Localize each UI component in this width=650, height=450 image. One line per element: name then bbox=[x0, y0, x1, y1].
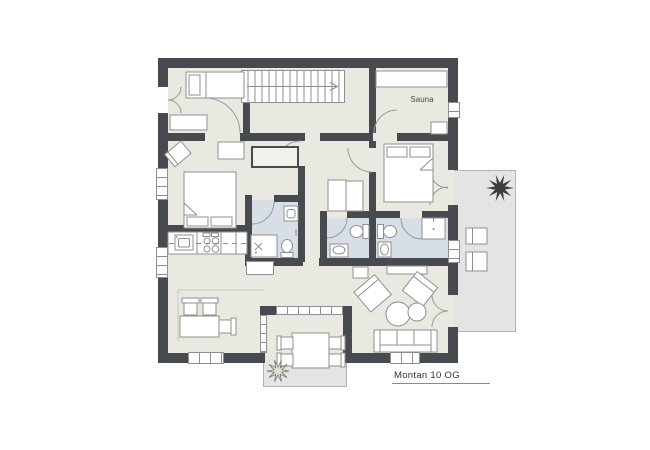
terrace-chair bbox=[466, 252, 487, 271]
dining-chair bbox=[201, 298, 218, 315]
plan-linework bbox=[0, 0, 650, 450]
dining-chair bbox=[182, 298, 199, 315]
kitchen-counter bbox=[168, 232, 247, 254]
sofa bbox=[374, 330, 437, 352]
dining-chair bbox=[219, 318, 236, 335]
bathroom-door-arc bbox=[327, 218, 347, 238]
balcony-table bbox=[292, 333, 329, 368]
shower bbox=[422, 218, 445, 239]
wardrobe bbox=[346, 181, 363, 211]
sauna-door-arc bbox=[374, 110, 397, 133]
dresser bbox=[218, 142, 244, 159]
closet bbox=[252, 147, 298, 167]
sideboard bbox=[387, 266, 427, 274]
double-bed bbox=[184, 172, 236, 228]
wardrobe bbox=[328, 180, 346, 211]
bathroom-sink bbox=[378, 242, 391, 257]
bathroom-door-arc bbox=[252, 202, 274, 224]
coffee-table bbox=[386, 302, 410, 326]
bathroom-sink bbox=[284, 206, 298, 221]
balcony-chair bbox=[277, 336, 293, 350]
desk bbox=[170, 115, 207, 130]
sauna-heater bbox=[431, 122, 447, 134]
coffee-table bbox=[408, 303, 426, 321]
entry-door-arc bbox=[168, 87, 181, 100]
french-door-arc bbox=[432, 311, 448, 327]
plant-icon bbox=[486, 175, 514, 202]
balcony-chair bbox=[329, 353, 345, 367]
armchair bbox=[402, 272, 437, 307]
door-arc bbox=[205, 98, 240, 133]
sauna-bench bbox=[376, 71, 447, 87]
title-underline bbox=[392, 383, 490, 384]
floor-plan-canvas: Sauna Montan 10 OG bbox=[0, 0, 650, 450]
french-door-arc bbox=[432, 295, 448, 311]
room-label-sauna: Sauna bbox=[398, 95, 446, 104]
toilet bbox=[281, 240, 293, 258]
armchair bbox=[354, 275, 391, 312]
side-table bbox=[353, 267, 368, 278]
toilet bbox=[350, 225, 369, 239]
kitchen-sink bbox=[175, 235, 193, 250]
bathroom-1-fixtures bbox=[251, 206, 298, 258]
armchair bbox=[165, 141, 191, 167]
shower bbox=[251, 235, 277, 257]
bathroom-sink bbox=[330, 244, 348, 257]
bathroom-3-fixtures bbox=[378, 218, 446, 257]
balcony-chair bbox=[329, 336, 345, 350]
terrace-chair bbox=[466, 228, 487, 244]
stairs bbox=[242, 71, 345, 103]
entry-door-arc bbox=[168, 100, 181, 113]
toilet bbox=[378, 225, 397, 239]
bathroom-2-fixtures bbox=[330, 225, 369, 258]
bathroom-door-arc bbox=[401, 218, 422, 239]
plan-title: Montan 10 OG bbox=[394, 370, 460, 381]
bedroom-door-arc bbox=[348, 148, 372, 172]
dining-table bbox=[180, 316, 219, 337]
single-bed bbox=[186, 72, 244, 98]
double-bed bbox=[384, 144, 433, 202]
